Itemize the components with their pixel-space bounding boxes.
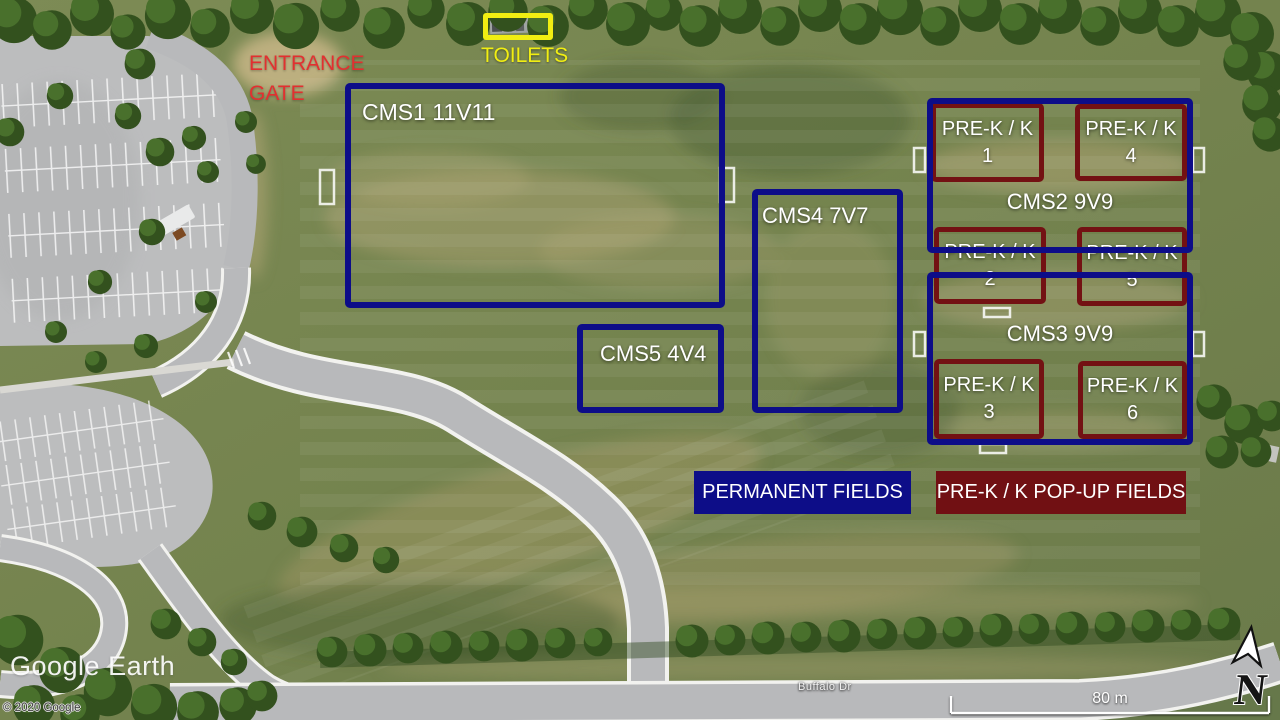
entrance-gate-line1: ENTRANCE: [249, 49, 365, 79]
google-earth-watermark: Google Earth: [10, 651, 175, 682]
field-label-cms4: CMS4 7V7: [762, 203, 868, 229]
legend-popup-label: PRE-K / K POP-UP FIELDS: [937, 481, 1186, 504]
legend-popup: PRE-K / K POP-UP FIELDS: [936, 471, 1186, 514]
scale-label: 80 m: [1078, 690, 1142, 708]
entrance-gate-label: ENTRANCE GATE: [249, 49, 365, 109]
copyright-notice: © 2020 Google: [3, 702, 81, 714]
field-box-cms2: [927, 98, 1193, 253]
field-label-cms3: CMS3 9V9: [927, 321, 1193, 347]
field-label-cms2: CMS2 9V9: [927, 189, 1193, 215]
legend-permanent: PERMANENT FIELDS: [694, 471, 911, 514]
street-label: Buffalo Dr: [798, 681, 852, 693]
field-label-cms5: CMS5 4V4: [600, 341, 706, 367]
field-label-cms1: CMS1 11V11: [362, 99, 495, 126]
google-earth-screenshot: PRE-K / K 1 PRE-K / K 2 PRE-K / K 3 PRE-…: [0, 0, 1280, 720]
field-box-cms3: [927, 272, 1193, 445]
north-arrow-icon: [1233, 625, 1265, 665]
entrance-gate-line2: GATE: [249, 79, 365, 109]
toilets-label: TOILETS: [481, 44, 568, 68]
compass-n-label: N: [1232, 665, 1270, 712]
north-arrow: N: [1218, 624, 1280, 712]
toilets-box: [483, 13, 553, 40]
legend-permanent-label: PERMANENT FIELDS: [702, 481, 903, 504]
field-box-cms5: [577, 324, 724, 413]
